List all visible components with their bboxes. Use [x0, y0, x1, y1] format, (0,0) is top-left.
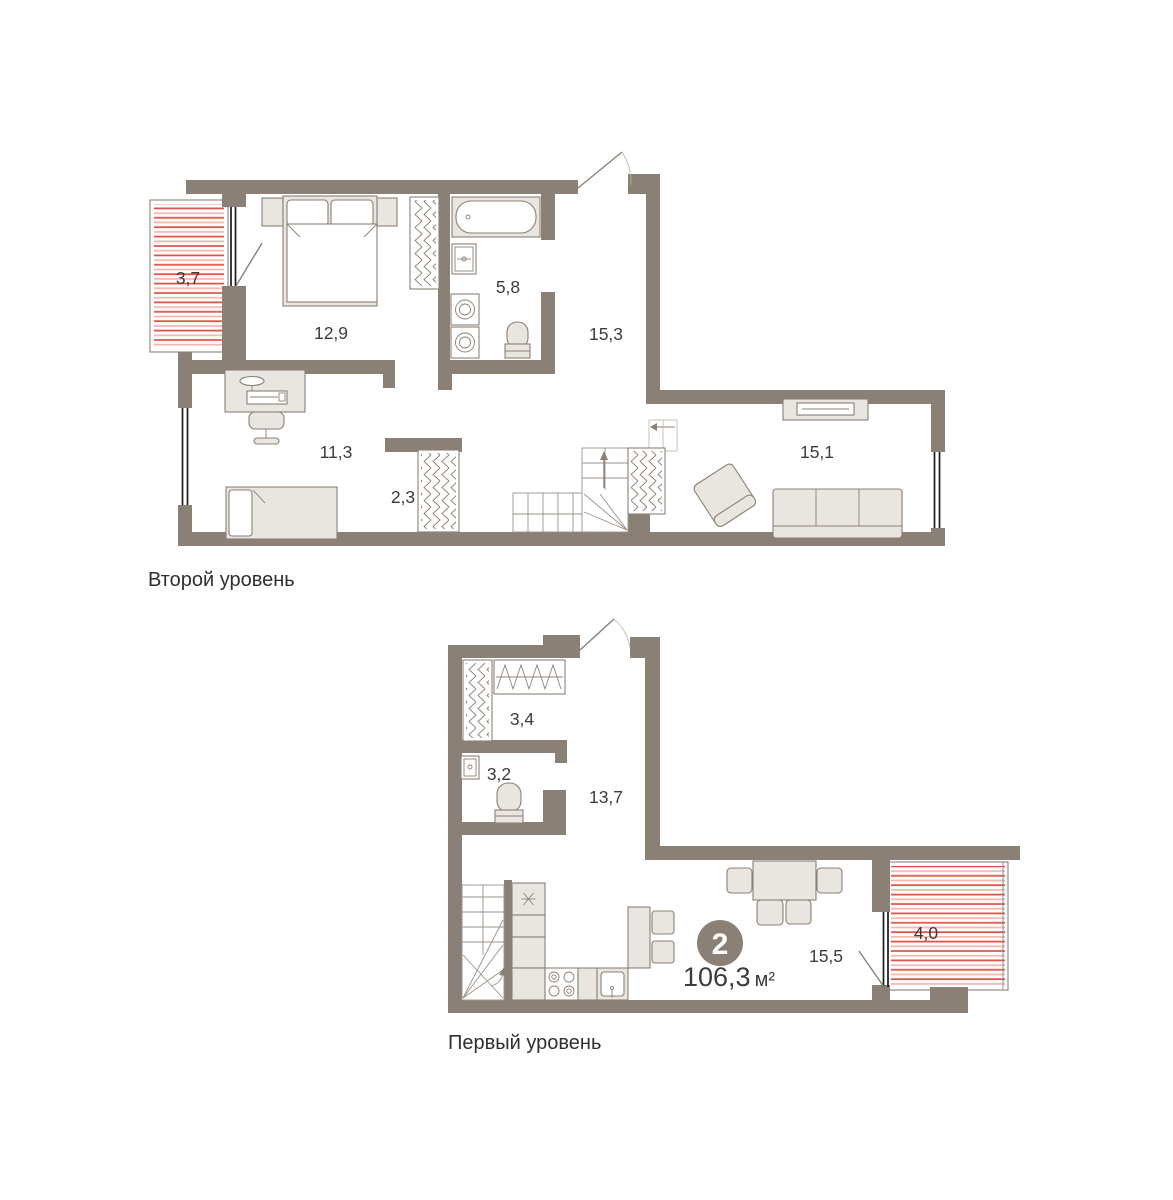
- balcony-1f-hatch: [891, 866, 1005, 986]
- toilet-1f: [495, 783, 523, 823]
- wardrobe-area-label-1f: 3,4: [510, 709, 535, 729]
- dining-set: [727, 861, 842, 925]
- floor-plan-svg: 3,7 12,9 5,8 15,3 11,3 2,3 15,1 Второй у…: [0, 0, 1173, 1200]
- balcony-1f: [888, 862, 1008, 990]
- stairs-1f: [462, 885, 507, 1000]
- total-area: 106,3м²: [683, 962, 775, 992]
- bedroom-wardrobe: [410, 197, 439, 289]
- entrance-door-1f: [580, 619, 630, 650]
- stove: [545, 968, 578, 1000]
- kitchen: [512, 883, 674, 1000]
- bathroom-sink: [452, 244, 476, 274]
- first-level-plan: 2 106,3м² 3,4 3,2 13,7 15,5 4,0 Первый у…: [448, 619, 1020, 1054]
- wc-area-label: 3,2: [487, 764, 511, 784]
- desk: [225, 370, 305, 412]
- room-area-label: 11,3: [320, 442, 353, 462]
- kitchen-living-area-label: 15,5: [809, 946, 843, 966]
- floor-plan-page: 3,7 12,9 5,8 15,3 11,3 2,3 15,1 Второй у…: [0, 0, 1173, 1200]
- washing-machine-2: [451, 327, 479, 358]
- total-area-unit: м²: [755, 969, 776, 991]
- hall-area-label-1f: 13,7: [589, 787, 623, 807]
- double-bed: [262, 196, 397, 306]
- kitchen-cabinet: [628, 907, 650, 968]
- hall-area-label-2f: 15,3: [589, 324, 623, 344]
- bathtub: [452, 197, 540, 237]
- rooms-badge-number: 2: [712, 928, 729, 961]
- balcony-door-1f: [859, 912, 888, 987]
- bathroom-area-label: 5,8: [496, 277, 520, 297]
- plan-summary: 2 106,3м²: [683, 920, 775, 992]
- window-left-2f: [178, 408, 192, 505]
- balcony-area-label-2f: 3,7: [176, 268, 200, 288]
- desk-chair: [249, 412, 284, 444]
- balcony-area-label-1f: 4,0: [914, 923, 939, 943]
- second-level-caption: Второй уровень: [148, 569, 295, 591]
- hallway-wardrobe-2f: [628, 448, 665, 514]
- bar-chair-2: [652, 941, 674, 963]
- second-level-plan: 3,7 12,9 5,8 15,3 11,3 2,3 15,1 Второй у…: [148, 152, 945, 591]
- closet-wardrobe: [418, 450, 459, 532]
- toilet-2f: [505, 322, 530, 358]
- balcony-door-2f: [231, 207, 262, 286]
- tv-unit: [783, 399, 868, 420]
- washing-machine-1: [451, 294, 479, 325]
- closet-area-label: 2,3: [391, 487, 415, 507]
- single-bed: [226, 487, 337, 539]
- first-level-caption: Первый уровень: [448, 1032, 601, 1054]
- armchair: [692, 462, 757, 528]
- bar-chair-1: [652, 911, 674, 934]
- wc-sink: [461, 756, 479, 779]
- sofa: [773, 489, 902, 538]
- kitchen-sink: [597, 968, 628, 1000]
- total-area-value: 106,3: [683, 962, 751, 992]
- living-area-label: 15,1: [800, 442, 834, 462]
- bedroom-area-label: 12,9: [314, 323, 348, 343]
- entrance-door-2f: [578, 152, 631, 188]
- window-living-2f: [931, 452, 945, 528]
